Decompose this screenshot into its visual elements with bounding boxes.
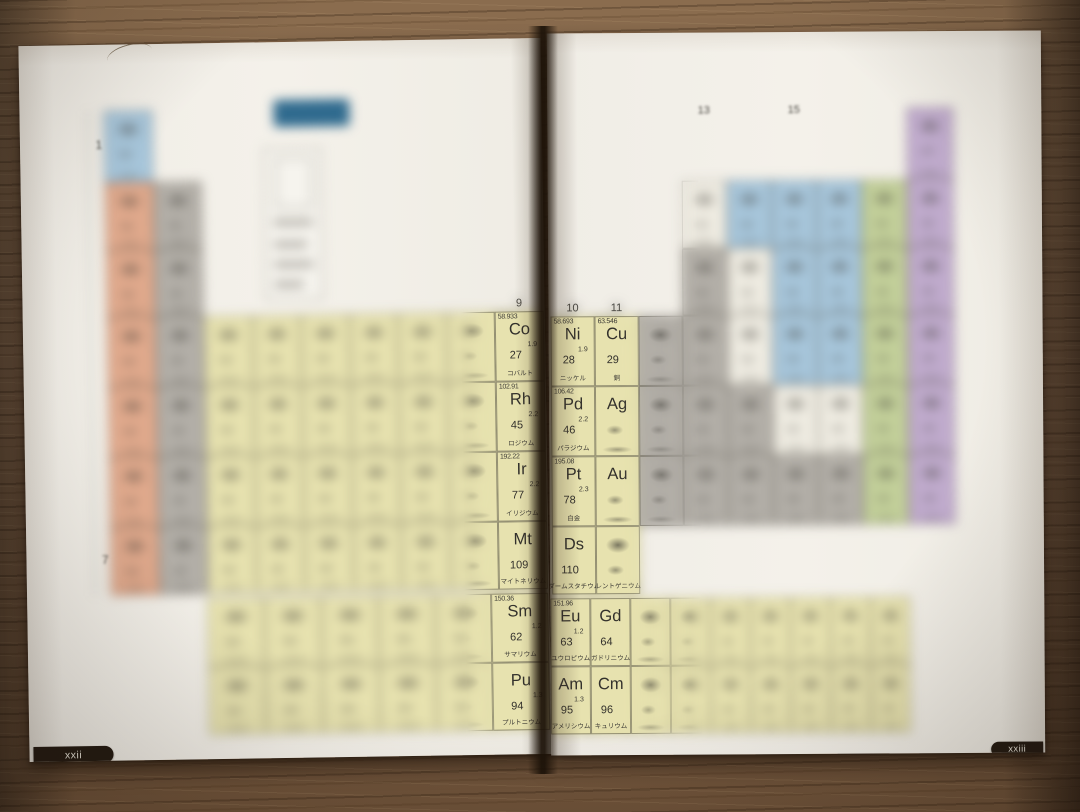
group-number-13: 13 [692, 104, 716, 116]
page-left-soft-labels: 17 [18, 38, 551, 762]
page-right-soft-labels: 1315 [547, 30, 1045, 755]
group-number-15: 15 [782, 104, 806, 116]
period-number-7: 7 [90, 555, 108, 567]
page-number-tab-left: xxii [33, 746, 113, 762]
book-page-left: 58.933Co1.927コバルト102.91Rh2.245ロジウム192.22… [18, 38, 551, 762]
photo-scene: 58.933Co1.927コバルト102.91Rh2.245ロジウム192.22… [0, 0, 1080, 812]
period-number-1: 1 [84, 140, 102, 152]
page-number-left: xxii [65, 749, 82, 761]
book-page-right: 58.693Ni1.928ニッケル63.546Cu29銅106.42Pd2.24… [547, 30, 1045, 755]
